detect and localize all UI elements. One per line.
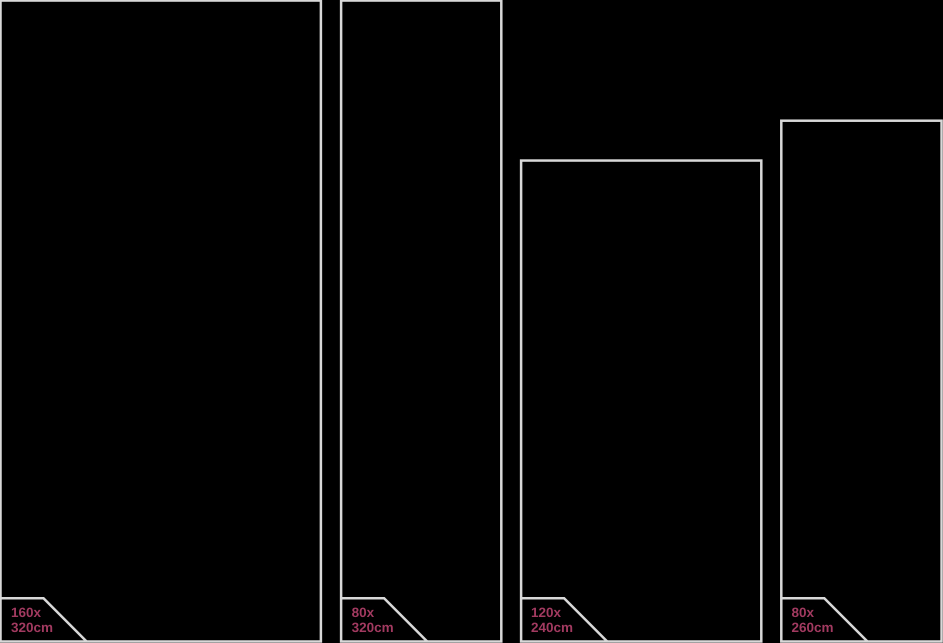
svg-text:320cm: 320cm [352,620,394,635]
svg-text:240cm: 240cm [531,620,573,635]
svg-text:160x: 160x [11,605,42,620]
svg-text:260cm: 260cm [792,620,834,635]
svg-text:120x: 120x [531,605,562,620]
svg-text:80x: 80x [352,605,375,620]
svg-text:80x: 80x [792,605,815,620]
svg-text:320cm: 320cm [11,620,53,635]
